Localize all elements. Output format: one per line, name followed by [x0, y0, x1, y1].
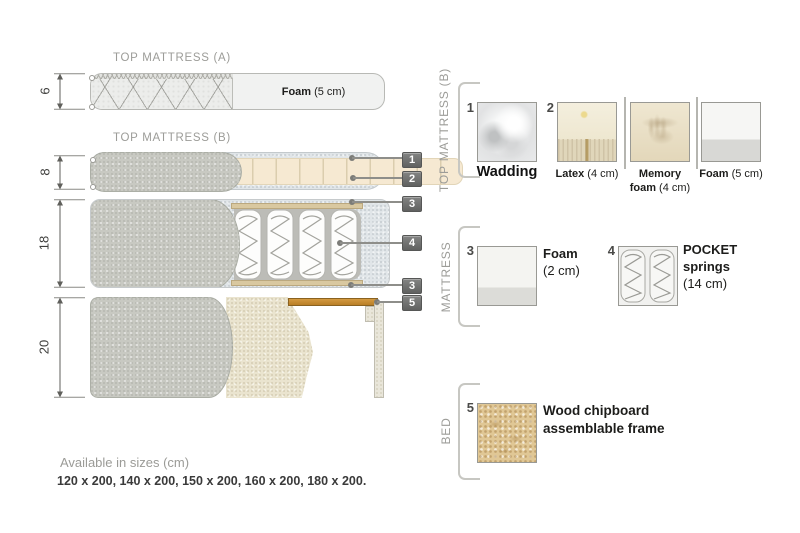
top-mattress-a-title: TOP MATTRESS (A): [113, 52, 231, 64]
top-mattress-a: Foam(5 cm): [90, 73, 385, 110]
callout-badge-3: 3: [402, 196, 422, 212]
tuft-button: [90, 184, 96, 190]
top-mattress-b-title: TOP MATTRESS (B): [113, 132, 231, 144]
legend-item-number: 1: [462, 100, 474, 115]
chipboard-image: [477, 403, 537, 463]
chipboard-caption: Wood chipboard assemblable frame: [543, 402, 693, 437]
legend-item-number: 4: [603, 243, 615, 258]
callout-badge-1: 1: [402, 152, 422, 168]
bed-frame-post: [374, 302, 384, 398]
legend-divider: [696, 97, 698, 169]
callout-badge-3b: 3: [402, 278, 422, 294]
legend-section-label-bed: BED: [439, 417, 453, 444]
dimension-value: 8: [38, 168, 53, 175]
memory-foam-image: [630, 102, 690, 162]
callout-line: [353, 177, 402, 179]
dimension-value: 18: [37, 236, 52, 250]
dimension-arrow: [52, 155, 86, 190]
fabric-cover: [90, 152, 242, 192]
callout-badge-5: 5: [402, 295, 422, 311]
bed-frame-bracket: [365, 306, 375, 322]
fabric-cover: [90, 199, 240, 288]
pocket-springs-caption: POCKET springs (14 cm): [683, 242, 773, 293]
bed-fabric-cover: [90, 297, 233, 398]
callout-badge-4: 4: [402, 235, 422, 251]
dimension-arrow: [52, 73, 86, 110]
foam-layer-bottom: [231, 280, 363, 286]
callout-line: [340, 242, 402, 244]
foam-layer-label: Foam(5 cm): [241, 74, 385, 110]
callout-line: [377, 301, 402, 303]
dimension-arrow: [52, 199, 86, 288]
legend-section-label-top-mattress-b: TOP MATTRESS (B): [437, 68, 451, 192]
callout-line: [351, 284, 402, 286]
dimension-value: 20: [37, 340, 52, 354]
bed-fabric-drape: [226, 297, 313, 398]
legend-section-label-mattress: MATTRESS: [439, 242, 453, 313]
dimension-arrow: [52, 297, 86, 398]
bed-wood-slat: [288, 298, 378, 306]
tuft-button: [89, 75, 95, 81]
foam-5cm-image: [701, 102, 761, 162]
available-sizes-list: 120 x 200, 140 x 200, 150 x 200, 160 x 2…: [57, 474, 366, 488]
legend-item-number: 2: [542, 100, 554, 115]
pocket-springs-image: [618, 246, 678, 306]
callout-line: [352, 157, 402, 159]
foam-blocks-layer: [229, 158, 463, 185]
tuft-button: [89, 104, 95, 110]
foam-5cm-caption: Foam(5 cm): [676, 168, 786, 182]
quilt-zigzag-edge: [91, 74, 233, 79]
latex-image: [557, 102, 617, 162]
available-sizes-title: Available in sizes (cm): [60, 455, 189, 470]
callout-badge-2: 2: [402, 171, 422, 187]
quilted-layer: [91, 74, 233, 110]
legend-item-number: 3: [462, 243, 474, 258]
legend-item-number: 5: [462, 400, 474, 415]
dimension-value: 6: [38, 87, 53, 94]
pocket-springs-graphic: [619, 247, 677, 305]
foam-2cm-image: [477, 246, 537, 306]
tuft-button: [90, 157, 96, 163]
mattress-construction-diagram: TOP MATTRESS (A) Foam(5 cm) TOP MATTRESS…: [0, 0, 800, 533]
wadding-image: [477, 102, 537, 162]
legend-divider: [624, 97, 626, 169]
top-mattress-b: [90, 152, 385, 190]
callout-line: [352, 201, 402, 203]
